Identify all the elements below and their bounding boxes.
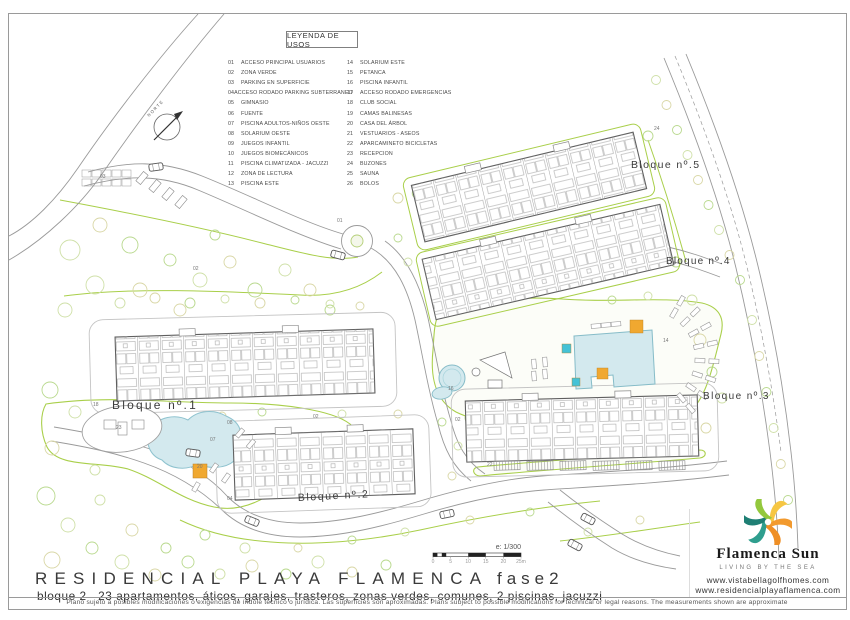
scale-bar-segment [433,553,437,557]
tree-icon [748,316,757,325]
legend-number-marker: 04 [227,496,233,502]
legend-column-right: 14SOLARIUM ESTE15PETANCA16PISCINA INFANT… [347,58,497,189]
legend-item: 11PISCINA CLIMATIZADA - JACUZZI [228,159,347,169]
legend-item: 05GIMNASIO [228,98,347,108]
green-line [60,200,358,258]
legend-item: 19CAMAS BALINESAS [347,108,497,118]
sun-pinwheel-icon [744,499,792,545]
legend-item-number: 13 [228,181,241,187]
brand-urls: www.vistabellagolfhomes.com www.residenc… [690,576,846,596]
legend-item-label: PETANCA [360,70,386,76]
tree-icon [86,542,98,554]
legend-number-marker: 03 [100,174,106,180]
lounger-icon [542,357,547,367]
scale-tick: 20 [501,559,507,565]
legend-item: 15PETANCA [347,68,497,78]
legend-column-left: 01ACCESO PRINCIPAL USUARIOS02ZONA VERDE0… [228,58,347,189]
brand-tagline: LIVING BY THE SEA [690,565,846,571]
scale-tick: 15 [483,559,489,565]
lounger-icon [531,371,536,381]
legend-item-label: JUEGOS INFANTIL [241,141,290,147]
tree-icon [394,234,402,242]
tree-icon [255,298,265,308]
car-icon [439,509,454,519]
legend-item: 25SAUNA [347,169,497,179]
tree-icon [644,292,652,300]
legend-item: 26BOLOS [347,179,497,189]
legend-number-marker: 23 [116,425,122,431]
legend-item: 02ZONA VERDE [228,68,347,78]
tree-icon [448,472,456,480]
tree-icon [95,495,105,505]
legend-item-label: PISCINA ADULTOS-NIÑOS OESTE [241,121,330,127]
legend-number-marker: 07 [210,437,216,443]
legend-item-number: 25 [347,171,360,177]
green-line [64,272,382,296]
legend-item-label: SOLARIUM ESTE [360,60,405,66]
parking-stall [82,170,91,177]
amenity-marker [597,368,608,379]
pinwheel-center [765,519,771,525]
tree-icon [393,193,403,203]
legend-number-marker: 01 [337,218,343,224]
car-icon [244,515,260,527]
lounger-icon [221,473,230,483]
brand-url-2: www.residencialplayaflamenca.com [690,586,846,596]
brand-name: Flamenca Sun [690,546,846,563]
pool-main-east [574,330,655,389]
lounger-icon [611,321,621,326]
tree-icon [60,240,80,260]
legend-item-number: 19 [347,111,360,117]
legend-item-number: 14 [347,60,360,66]
car-icon [186,449,201,458]
legend-item-number: 18 [347,100,360,106]
tree-icon [312,556,324,568]
tree-icon [755,352,764,361]
tree-icon [44,552,60,568]
legend-item-label: VESTUARIOS - ASEOS [360,131,420,137]
tree-icon [42,382,58,398]
tree-icon [61,518,75,532]
legend-item-number: 07 [228,121,241,127]
parked-car-icon [149,179,161,192]
tree-icon [652,76,661,85]
bike-parking-icon [494,461,520,471]
legend-item: 18CLUB SOCIAL [347,98,497,108]
tree-icon [394,410,402,418]
legend-item: 10JUEGOS BIOMECÁNICOS [228,149,347,159]
block-label: Bloque nº.2 [298,488,370,504]
lounger-icon [542,369,547,379]
tree-icon [150,293,160,303]
tree-icon [694,176,703,185]
tree-icon [248,283,262,297]
legend-number-marker: 02 [455,417,461,423]
brand-block: Flamenca Sun LIVING BY THE SEA www.vista… [690,499,846,596]
scale-bar-segment [442,553,446,557]
tree-icon [221,295,229,303]
legend-item: 24BUZONES [347,159,497,169]
road-edge [9,14,224,260]
plan-sheet: NORTEBloque nº.1Bloque nº.2Bloque nº.3Bl… [0,0,850,620]
legend-item-label: PISCINA INFANTIL [360,80,408,86]
tree-icon [326,300,334,308]
legend-item-number: 11 [228,161,241,167]
tree-icon [636,516,644,524]
tree-icon [776,460,785,469]
road-edge [686,54,798,548]
tree-icon [200,530,210,540]
tree-icon [704,201,713,210]
bike-parking-icon [527,461,553,471]
parked-car-icon [162,187,174,200]
tree-icon [291,296,299,304]
bike-parking-icon [626,461,652,471]
legend-item-number: 16 [347,80,360,86]
legend-item-label: ZONA DE LECTURA [241,171,293,177]
amenity-marker [562,344,571,353]
legend-number-marker: 08 [227,420,233,426]
car-icon [330,250,345,260]
legend-item-label: ACCESO RODADO PARKING SUBTERRANEO [234,90,353,96]
legend-item-label: ACCESO PRINCIPAL USUARIOS [241,60,325,66]
amenity-marker [572,378,580,386]
building-bloque-2 [233,423,415,500]
scale-tick: 25m [516,559,526,565]
scale-bar-segment [468,553,486,557]
tree-icon [182,556,194,568]
tree-icon [673,126,682,135]
tree-icon [185,298,195,308]
tree-icon [526,508,534,516]
bike-parking-icon [593,461,619,471]
scale-bar-segment [503,553,521,557]
tree-icon [122,237,138,253]
legend-item-label: PISCINA CLIMATIZADA - JACUZZI [241,161,329,167]
roundabout-island [351,235,363,247]
legend-item-label: CASA DEL ÁRBOL [360,121,407,127]
legend-item-label: FUENTE [241,111,263,117]
tree-icon [193,273,207,287]
tree-icon [93,218,107,232]
tree-icon [86,276,104,294]
legend-item-number: 22 [347,141,360,147]
parked-car-icon [175,195,187,208]
tree-icon [58,303,72,317]
disclaimer-text: Plano sujeto a posibles modificaciones o… [8,599,846,606]
car-icon [149,163,164,172]
tree-icon [161,543,171,553]
legend-number-marker: 22 [487,462,493,468]
legend-item-label: CLUB SOCIAL [360,100,397,106]
legend-item-label: ZONA VERDE [241,70,277,76]
tree-icon [454,442,462,450]
lounger-icon [601,322,611,327]
legend-item-number: 20 [347,121,360,127]
tree-icon [164,254,176,266]
legend-item: 13PISCINA ESTE [228,179,347,189]
road-edge [548,502,676,569]
legend-item-number: 21 [347,131,360,137]
phase-label: fase2 [497,569,564,589]
legend-item: 16PISCINA INFANTIL [347,78,497,88]
legend-number-marker: 20 [197,464,203,470]
lounger-icon [695,358,705,363]
club-social-structure [488,380,502,388]
legend-number-marker: 02 [313,414,319,420]
legend-item-number: 03 [228,80,241,86]
building-bloque-1 [115,323,375,401]
tree-icon [438,418,446,426]
lounger-icon [531,359,536,369]
legend-item-label: PARKING EN SUPERFICIE [241,80,310,86]
tree-icon [115,298,125,308]
legend-item-label: BOLOS [360,181,379,187]
tree-icon [304,284,316,296]
bike-parking-icon [659,461,685,471]
lounger-icon [591,323,601,328]
legend-item-number: 12 [228,171,241,177]
tree-icon [701,423,711,433]
legend-item-number: 23 [347,151,360,157]
parking-stall [112,170,121,177]
tree-icon [174,304,186,316]
car-icon [567,539,583,552]
legend-item-number: 01 [228,60,241,66]
legend-number-marker: 18 [93,402,99,408]
legend-item-label: JUEGOS BIOMECÁNICOS [241,151,308,157]
legend-item: 14SOLARIUM ESTE [347,58,497,68]
amenity-marker [630,320,643,333]
scale-label: e: 1/300 [496,544,521,551]
block-label: Bloque nº.5 [631,159,700,171]
legend-item: 17ACCESO RODADO EMERGENCIAS [347,88,497,98]
scale-tick: 10 [465,559,471,565]
tree-icon [37,487,55,505]
legend-item: 04ACCESO RODADO PARKING SUBTERRANEO [228,88,347,98]
tree-icon [769,424,778,433]
legend-item: 07PISCINA ADULTOS-NIÑOS OESTE [228,119,347,129]
legend-item-number: 06 [228,111,241,117]
legend-item-label: PISCINA ESTE [241,181,279,187]
bike-parking-icon [560,461,586,471]
parking-stall [122,179,131,186]
legend-number-marker: 16 [448,386,454,392]
legend-item: 08SOLARIUM OESTE [228,129,347,139]
brand-url-1: www.vistabellagolfhomes.com [690,576,846,586]
tree-icon [126,524,138,536]
tree-icon [69,406,81,418]
legend-title: LEYENDA DE USOS [286,31,358,48]
legend-item: 22APARCAMINETO BICICLETAS [347,139,497,149]
legend-item-number: 08 [228,131,241,137]
legend-item-number: 15 [347,70,360,76]
legend-item: 03PARKING EN SUPERFICIE [228,78,347,88]
scale-tick: 5 [449,559,452,565]
tree-icon [240,543,250,553]
legend-item: 09JUEGOS INFANTIL [228,139,347,149]
legend-item-label: CAMAS BALINESAS [360,111,412,117]
legend-item: 21VESTUARIOS - ASEOS [347,129,497,139]
legend-item: 20CASA DEL ÁRBOL [347,119,497,129]
legend-item-number: 26 [347,181,360,187]
legend-item: 06FUENTE [228,108,347,118]
parking-stall [122,170,131,177]
fountain-icon [472,368,480,376]
legend-item-number: 17 [347,90,360,96]
legend-item-label: GIMNASIO [241,100,269,106]
block-label: Bloque nº.4 [666,256,731,267]
legend-item-label: RECEPCION [360,151,393,157]
legend-item-label: ACCESO RODADO EMERGENCIAS [360,90,451,96]
tree-icon [279,264,291,276]
tree-icon [115,555,129,569]
legend-number-marker: 02 [193,266,199,272]
building-bloque-3 [465,389,699,462]
legend-item-label: SAUNA [360,171,379,177]
block-label: Bloque nº.3 [703,391,770,402]
tree-icon [294,544,302,552]
legend-item-label: BUZONES [360,161,387,167]
scale-tick: 0 [432,559,435,565]
legend-item-number: 05 [228,100,241,106]
legend-item-number: 02 [228,70,241,76]
tree-icon [356,302,364,310]
legend-item-number: 10 [228,151,241,157]
legend-item: 12ZONA DE LECTURA [228,169,347,179]
legend-item-label: SOLARIUM OESTE [241,131,290,137]
legend-item-label: APARCAMINETO BICICLETAS [360,141,437,147]
scale-bar: e: 1/3000510152025m [432,544,526,565]
tree-icon [715,226,724,235]
legend-item: 23RECEPCION [347,149,497,159]
block-label: Bloque nº.1 [112,398,198,412]
tree-icon [133,283,147,297]
legend-number-marker: 14 [663,338,669,344]
legend: 01ACCESO PRINCIPAL USUARIOS02ZONA VERDE0… [228,58,497,189]
lounger-icon [709,359,719,364]
tree-icon [224,256,236,268]
legend-item: 01ACCESO PRINCIPAL USUARIOS [228,58,347,68]
tree-icon [662,101,671,110]
tree-icon [90,465,100,475]
project-title: RESIDENCIAL PLAYA FLAMENCA [35,569,488,589]
legend-item-number: 09 [228,141,241,147]
legend-number-marker: 24 [654,126,660,132]
legend-item-number: 24 [347,161,360,167]
tree-icon [643,131,653,141]
